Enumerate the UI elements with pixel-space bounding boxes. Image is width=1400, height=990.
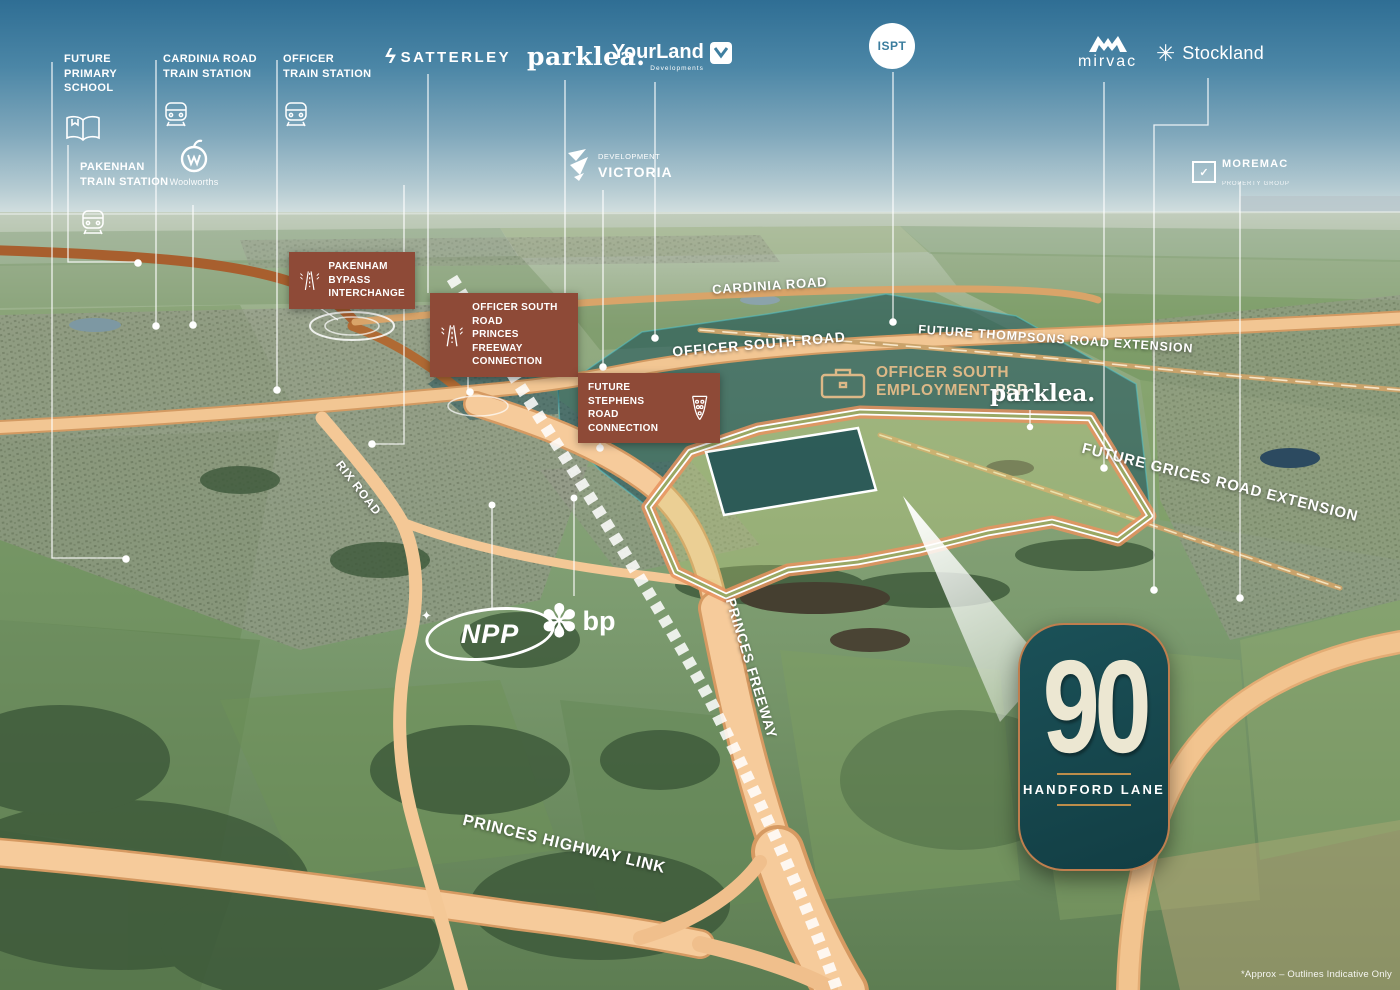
mirvac-logo: mirvac bbox=[1078, 34, 1137, 71]
aerial-masterplan-map: FUTURE PRIMARY SCHOOL PAKENHAN TRAIN STA… bbox=[0, 0, 1400, 990]
satterley-logo: ϟ SATTERLEY bbox=[385, 46, 511, 69]
poi-pakenhan-train-station: PAKENHAN TRAIN STATION bbox=[80, 146, 169, 256]
fine-print: *Approx – Outlines Indicative Only bbox=[1241, 969, 1392, 980]
npp-logo: ✦ NPP bbox=[425, 608, 555, 660]
book-icon bbox=[64, 101, 117, 148]
ispt-logo: ISPT bbox=[869, 23, 915, 69]
moremac-icon: ✓ bbox=[1192, 161, 1216, 183]
yourland-icon bbox=[710, 42, 732, 64]
parklea-site-label: parklea. bbox=[990, 380, 1095, 407]
handford-lane-90-badge: 90 HANDFORD LANE bbox=[1018, 623, 1170, 871]
badge-name: HANDFORD LANE bbox=[1023, 782, 1165, 797]
woolworths-logo: Woolworths bbox=[162, 138, 226, 187]
freeway-interchange-icon bbox=[299, 264, 320, 296]
development-victoria-icon bbox=[566, 147, 592, 181]
badge-number: 90 bbox=[1042, 641, 1146, 773]
moremac-logo: ✓ MOREMAC PROPERTY GROUP bbox=[1192, 154, 1290, 190]
bp-logo: ✽ bp bbox=[540, 598, 616, 644]
yourland-logo: YourLand Developments bbox=[612, 42, 732, 72]
callout-officer-south-road-connection: OFFICER SOUTH ROAD PRINCES FREEWAY CONNE… bbox=[430, 293, 578, 377]
woolworths-icon bbox=[177, 138, 211, 174]
freeway-interchange-icon bbox=[440, 319, 464, 351]
bp-helios-icon: ✽ bbox=[540, 598, 579, 644]
stockland-logo: ✳ Stockland bbox=[1156, 42, 1264, 65]
poi-future-primary-school: FUTURE PRIMARY SCHOOL bbox=[64, 38, 117, 162]
callout-future-stephens-road-connection: FUTURE STEPHENS ROAD CONNECTION bbox=[578, 373, 720, 443]
poi-cardinia-road-train-station: CARDINIA ROAD TRAIN STATION bbox=[163, 38, 257, 148]
poi-officer-train-station: OFFICER TRAIN STATION bbox=[283, 38, 372, 148]
stockland-icon: ✳ bbox=[1156, 42, 1175, 65]
badge-divider-bottom bbox=[1057, 804, 1131, 806]
callout-pakenham-bypass-interchange: PAKENHAM BYPASS INTERCHANGE bbox=[289, 252, 415, 309]
train-icon bbox=[283, 87, 372, 134]
development-victoria-logo: DEVELOPMENT VICTORIA bbox=[566, 146, 673, 182]
satterley-icon: ϟ bbox=[385, 46, 396, 69]
mirvac-icon bbox=[1087, 34, 1129, 52]
train-icon bbox=[163, 87, 257, 134]
briefcase-icon bbox=[820, 365, 866, 399]
train-icon bbox=[80, 195, 169, 242]
road-connection-icon bbox=[689, 393, 710, 423]
